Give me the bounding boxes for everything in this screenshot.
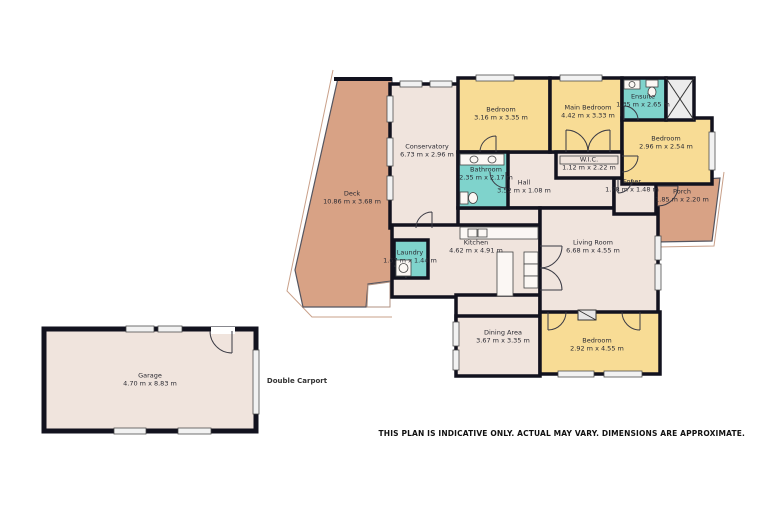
window	[158, 326, 182, 332]
room-living	[540, 208, 658, 316]
window	[476, 75, 514, 81]
window	[558, 371, 594, 377]
room-conservatory	[390, 84, 460, 228]
window	[604, 371, 642, 377]
garage-door-gap	[211, 327, 235, 334]
room-dining	[456, 316, 540, 376]
room-bedroom-top	[458, 78, 550, 152]
ensuite-toilet	[648, 87, 656, 97]
kitchen-appliance	[524, 264, 538, 276]
window	[709, 132, 715, 170]
window	[453, 322, 459, 346]
window	[114, 428, 146, 434]
window	[655, 236, 661, 260]
window	[400, 81, 422, 87]
room-garage	[44, 329, 256, 431]
double-carport-label: Double Carport	[267, 377, 327, 385]
laundry-washer	[396, 260, 411, 276]
window	[560, 75, 602, 81]
deck-area	[295, 78, 392, 307]
bathroom-vanity	[460, 154, 504, 165]
window	[253, 350, 259, 414]
window	[178, 428, 211, 434]
ensuite-toilet-tank	[646, 80, 658, 87]
window	[387, 176, 393, 200]
room-bedroom-bottom	[540, 312, 660, 374]
room-bedroom-right	[622, 118, 712, 184]
window	[655, 264, 661, 290]
kitchen-appliance	[524, 252, 538, 264]
kitchen-island	[497, 252, 513, 296]
kitchen-appliance	[524, 276, 538, 288]
window	[126, 326, 154, 332]
bathroom-toilet	[469, 193, 478, 204]
room-main-bedroom	[550, 78, 622, 152]
porch-area	[656, 178, 720, 242]
floor-plan: Deck 10.86 m x 3.68 m Conservatory 6.73 …	[0, 0, 768, 512]
window	[387, 138, 393, 166]
deck-shape	[287, 70, 392, 317]
window	[453, 350, 459, 370]
bathroom-toilet-tank	[460, 192, 468, 204]
window	[430, 81, 452, 87]
disclaimer-text: THIS PLAN IS INDICATIVE ONLY. ACTUAL MAY…	[379, 429, 746, 438]
window	[387, 96, 393, 122]
deck-steps-cutout	[367, 282, 390, 307]
